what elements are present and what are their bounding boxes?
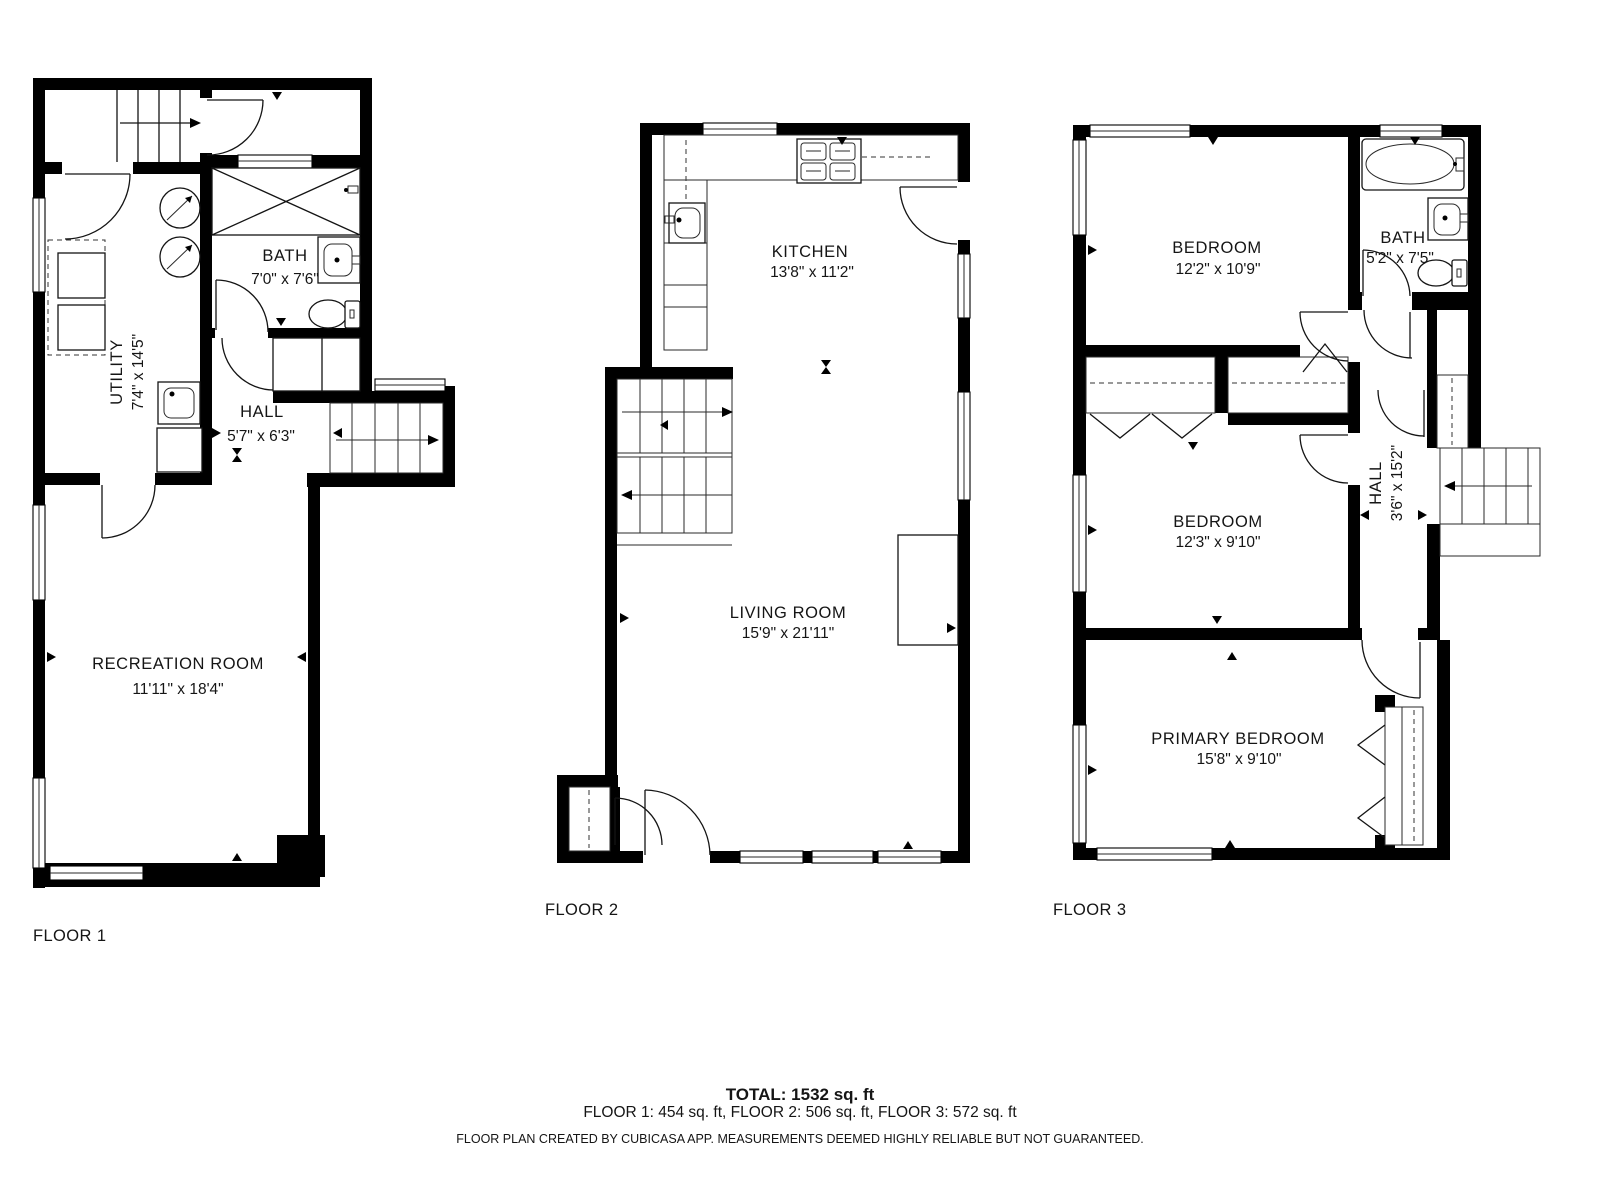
appliance-box xyxy=(58,253,105,298)
shower-icon xyxy=(212,168,360,235)
disclaimer-text: FLOOR PLAN CREATED BY CUBICASA APP. MEAS… xyxy=(456,1132,1143,1146)
floor-plan-canvas: UTILITY 7'4" x 14'5" BATH 7'0" x 7'6" HA… xyxy=(0,0,1600,1200)
floor-plan-page: UTILITY 7'4" x 14'5" BATH 7'0" x 7'6" HA… xyxy=(0,0,1600,1200)
floor2-windows xyxy=(703,123,970,863)
kitchen-sink-icon xyxy=(665,203,705,243)
room-hall-label: HALL xyxy=(240,403,284,421)
utility-sink-icon xyxy=(158,382,200,424)
room-bedroom2-dims: 12'3" x 9'10" xyxy=(1175,534,1260,551)
stairs-down-icon xyxy=(330,403,443,473)
floor1-label: FLOOR 1 xyxy=(33,927,106,945)
stairs-icon xyxy=(617,379,732,545)
closet-icon xyxy=(273,338,360,391)
toilet-icon xyxy=(309,300,360,328)
room-utility-label: UTILITY 7'4" x 14'5" xyxy=(108,334,147,410)
appliance-box xyxy=(58,305,105,350)
room-bedroom1-dims: 12'2" x 10'9" xyxy=(1175,261,1260,278)
floor2-label: FLOOR 2 xyxy=(545,901,618,919)
room-name: UTILITY xyxy=(108,339,126,405)
stove-icon xyxy=(797,139,861,183)
room-bath3-label: BATH xyxy=(1380,229,1425,247)
floor3-plan: BEDROOM 12'2" x 10'9" BATH 5'2" x 7'5" B… xyxy=(1053,125,1540,919)
room-bath-dims: 7'0" x 7'6" xyxy=(251,271,319,288)
room-dims: 3'6" x 15'2" xyxy=(1389,445,1406,521)
room-recreation-dims: 11'11" x 18'4" xyxy=(132,681,223,698)
room-bedroom1-label: BEDROOM xyxy=(1172,239,1261,257)
stairs-up-icon xyxy=(117,90,190,162)
bathtub-icon xyxy=(1362,139,1464,190)
stairs-icon xyxy=(1440,448,1540,556)
floor2-plan: KITCHEN 13'8" x 11'2" LIVING ROOM 15'9" … xyxy=(545,123,970,919)
floor-areas-text: FLOOR 1: 454 sq. ft, FLOOR 2: 506 sq. ft… xyxy=(583,1104,1017,1121)
floor3-label: FLOOR 3 xyxy=(1053,901,1126,919)
washer-icon xyxy=(160,188,200,228)
sink-icon xyxy=(318,237,360,283)
room-hall3-label: HALL 3'6" x 15'2" xyxy=(1367,445,1406,521)
entry-closet-icon xyxy=(569,787,610,851)
total-area-text: TOTAL: 1532 sq. ft xyxy=(726,1085,875,1104)
room-kitchen-dims: 13'8" x 11'2" xyxy=(770,264,854,281)
room-bedroom2-label: BEDROOM xyxy=(1173,513,1262,531)
room-bath-label: BATH xyxy=(262,247,307,265)
room-name: HALL xyxy=(1367,461,1385,505)
dryer-icon xyxy=(160,237,200,277)
room-primary-dims: 15'8" x 9'10" xyxy=(1196,751,1281,768)
room-bath3-dims: 5'2" x 7'5" xyxy=(1366,250,1434,267)
room-primary-label: PRIMARY BEDROOM xyxy=(1151,730,1324,748)
room-living-label: LIVING ROOM xyxy=(730,604,847,622)
cabinet-box xyxy=(157,428,202,472)
linen-closet-icon xyxy=(1437,375,1468,448)
sink-icon xyxy=(1428,198,1468,240)
room-living-dims: 15'9" x 21'11" xyxy=(742,625,834,642)
room-kitchen-label: KITCHEN xyxy=(772,243,849,261)
closet-icon xyxy=(1358,707,1423,845)
room-hall-dims: 5'7" x 6'3" xyxy=(227,428,295,445)
stairs-arrow-icon xyxy=(190,118,201,128)
room-recreation-label: RECREATION ROOM xyxy=(92,655,264,673)
footer: TOTAL: 1532 sq. ft FLOOR 1: 454 sq. ft, … xyxy=(456,1085,1143,1146)
room-dims: 7'4" x 14'5" xyxy=(130,334,147,410)
floor1-plan: UTILITY 7'4" x 14'5" BATH 7'0" x 7'6" HA… xyxy=(33,78,455,945)
